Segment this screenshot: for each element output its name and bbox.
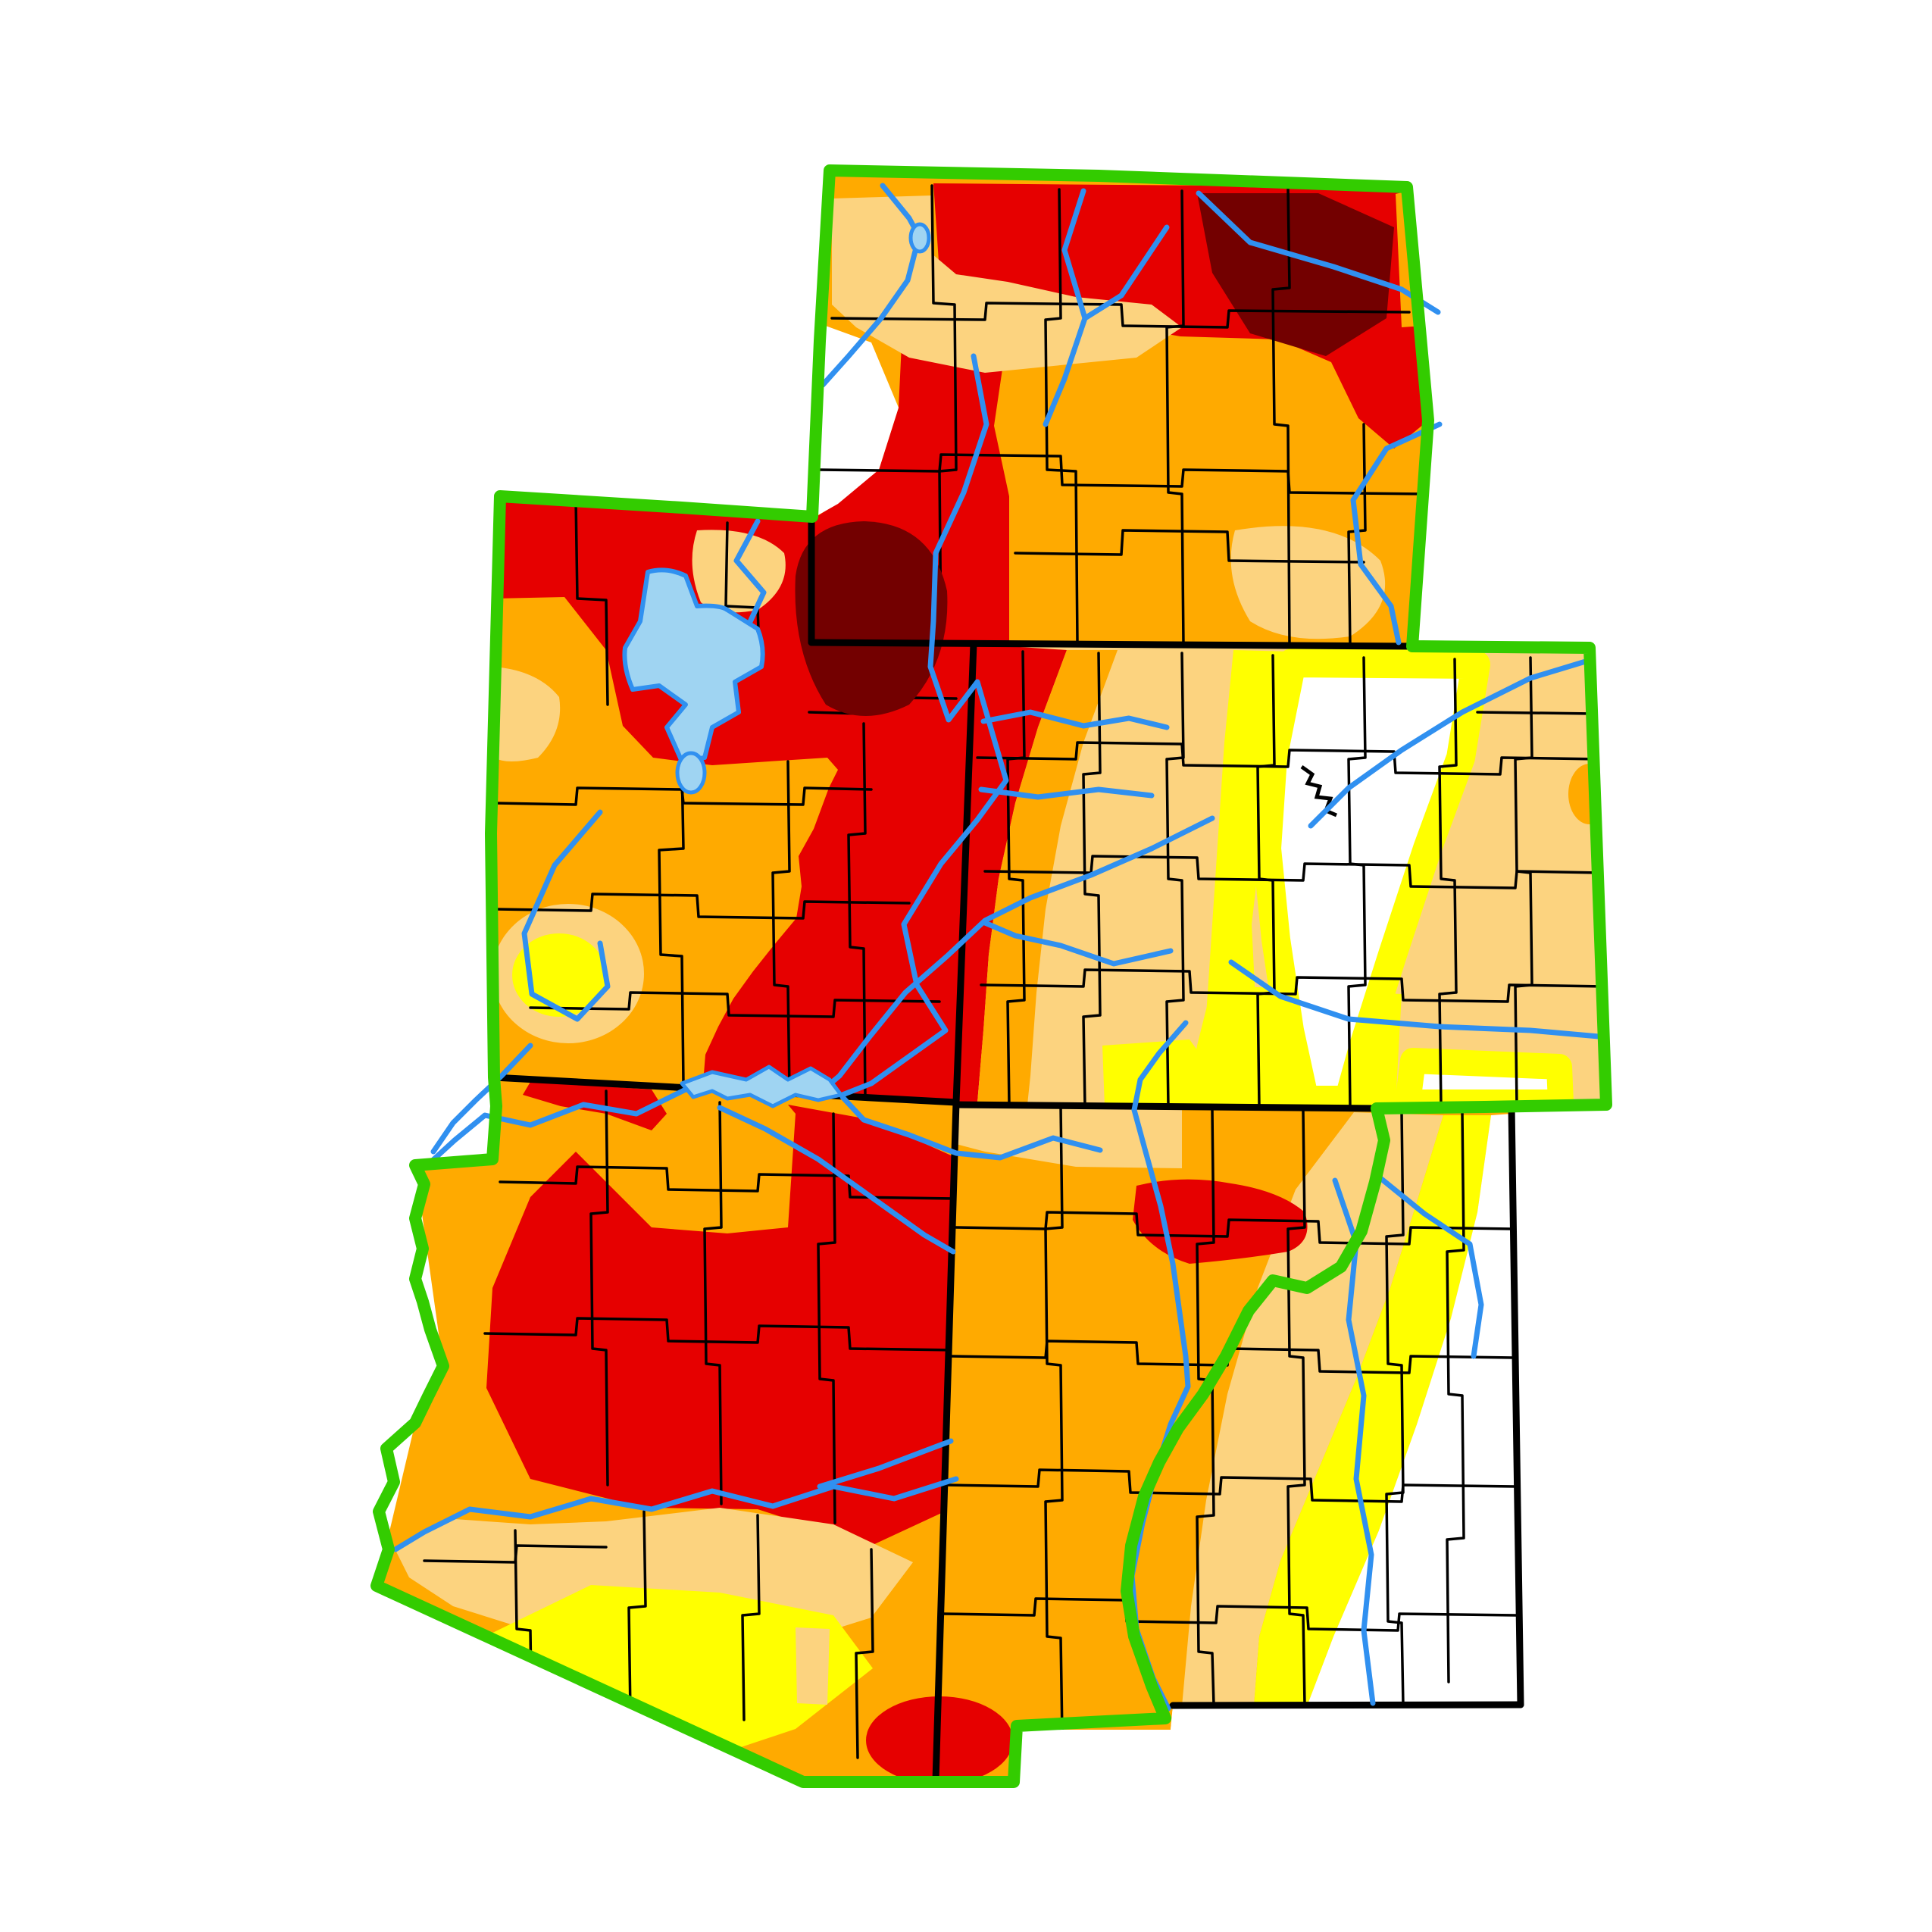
border-co-nm [956, 1105, 1377, 1108]
border-nm-south [1173, 1705, 1521, 1705]
utah-lake [677, 753, 705, 792]
jackson-lake [911, 224, 929, 252]
state-new-mexico [866, 1102, 1521, 1784]
border-wy-south [811, 642, 1412, 646]
drought-map-canvas [0, 0, 1932, 1932]
drought-map [0, 0, 1932, 1932]
arizona-d1-southeast-wedge [796, 1627, 830, 1705]
state-arizona [377, 1077, 1013, 1784]
state-colorado [956, 642, 1611, 1108]
colorado-none-southeast [1408, 1061, 1561, 1102]
new-mexico-none-bootheel-strip [1014, 1730, 1173, 1782]
